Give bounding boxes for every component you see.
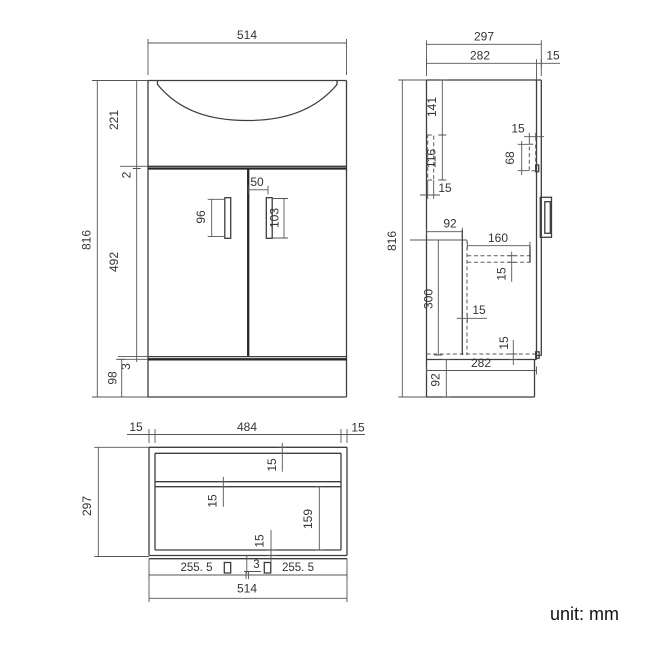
technical-drawing: 514 816 221 2 492 3 98 96 103 bbox=[0, 0, 650, 650]
plan-inner-outline bbox=[155, 453, 341, 550]
dim-label-plate-length: 68 bbox=[503, 151, 517, 165]
dim-label-front-height: 816 bbox=[80, 230, 94, 250]
hinge-mark-top bbox=[536, 165, 539, 172]
dim-recess: 92 bbox=[427, 217, 463, 236]
dim-label-plan-width: 514 bbox=[237, 582, 257, 596]
plan-outer-outline bbox=[149, 447, 347, 555]
dim-bracket-position: 141 116 bbox=[425, 80, 447, 180]
dim-plate-width: 15 bbox=[511, 122, 544, 145]
dim-label-bracket-length: 116 bbox=[425, 149, 439, 168]
dim-label-inner-width: 484 bbox=[237, 420, 257, 434]
dim-label-bracket-offset: 141 bbox=[425, 97, 439, 117]
basin-curve bbox=[158, 81, 338, 121]
dim-opening-depth: 159 bbox=[301, 487, 323, 550]
handle-plate-hidden bbox=[529, 144, 535, 170]
dim-label-plan-depth: 297 bbox=[80, 496, 94, 516]
dim-plan-depth: 297 bbox=[80, 447, 149, 556]
dim-label-carcass-depth: 282 bbox=[470, 49, 490, 63]
dim-label-front-width: 514 bbox=[237, 28, 257, 42]
dim-front-width: 514 bbox=[148, 28, 347, 75]
dim-label-bottom-depth: 282 bbox=[471, 356, 491, 370]
dim-label-left-door: 255. 5 bbox=[181, 562, 213, 574]
dim-bracket-width: 15 bbox=[420, 180, 452, 199]
dim-label-rail-thickness: 15 bbox=[206, 494, 220, 508]
dim-label-bottom-thickness: 15 bbox=[497, 336, 511, 350]
dim-plate-length: 68 bbox=[503, 141, 529, 175]
dim-label-front-panel: 15 bbox=[253, 534, 267, 548]
dim-right-handle: 103 bbox=[268, 199, 289, 239]
dim-divider-thickness: 15 bbox=[457, 303, 487, 322]
dim-label-door-height: 492 bbox=[107, 252, 121, 272]
dim-label-bottom-gap: 3 bbox=[119, 363, 133, 370]
dim-label-shelf-thickness: 15 bbox=[495, 267, 509, 281]
dim-label-side-depth: 297 bbox=[474, 30, 494, 44]
dim-side-carcass-door: 282 15 bbox=[427, 49, 561, 81]
dim-label-left-panel: 15 bbox=[129, 420, 143, 434]
left-door-handle bbox=[225, 198, 231, 239]
dim-side-height: 816 bbox=[385, 80, 427, 397]
dim-label-shelf-depth: 160 bbox=[488, 231, 508, 245]
dim-label-side-plinth: 92 bbox=[429, 373, 443, 387]
dim-label-side-height: 816 bbox=[385, 231, 399, 251]
dim-opening-height: 300 bbox=[410, 240, 467, 355]
side-handle-profile bbox=[540, 197, 551, 237]
dim-label-top-gap: 2 bbox=[120, 171, 134, 178]
dim-handle-offset: 50 bbox=[248, 175, 268, 195]
dim-label-plinth-height: 98 bbox=[106, 371, 120, 385]
front-view: 514 816 221 2 492 3 98 96 103 bbox=[80, 28, 347, 397]
shelf-hidden bbox=[467, 256, 530, 263]
dim-label-divider-thickness: 15 bbox=[472, 303, 486, 317]
dim-label-plate-width: 15 bbox=[511, 122, 525, 136]
dim-label-back-panel: 15 bbox=[265, 458, 279, 472]
dim-shelf-depth: 160 bbox=[467, 231, 530, 250]
side-view: 297 282 15 816 141 116 15 15 bbox=[385, 30, 560, 398]
dim-left-handle: 96 bbox=[194, 199, 225, 236]
dim-label-bracket-width: 15 bbox=[438, 181, 452, 195]
dim-plan-top: 15 484 15 bbox=[127, 420, 365, 443]
plan-right-handle bbox=[264, 563, 270, 574]
dim-bottom-thickness: 15 bbox=[497, 336, 517, 365]
dim-label-recess: 92 bbox=[443, 217, 457, 231]
dim-bottom-depth: 282 bbox=[427, 356, 537, 375]
dim-label-basin-height: 221 bbox=[107, 110, 121, 130]
dim-doors: 255. 5 3 255. 5 bbox=[149, 559, 347, 579]
dim-label-door-thickness: 15 bbox=[546, 49, 560, 63]
dim-label-right-panel: 15 bbox=[351, 421, 365, 435]
dim-front-chain: 221 2 492 3 bbox=[107, 81, 148, 370]
dim-label-opening-depth: 159 bbox=[301, 509, 315, 529]
dim-label-opening-height: 300 bbox=[422, 289, 436, 309]
plan-left-handle bbox=[224, 563, 230, 574]
unit-label: unit: mm bbox=[550, 604, 619, 624]
dim-label-left-handle: 96 bbox=[194, 210, 208, 224]
dim-label-right-door: 255. 5 bbox=[282, 562, 314, 574]
dim-side-plinth: 92 bbox=[429, 360, 451, 398]
dim-label-door-gap: 3 bbox=[253, 559, 259, 571]
plan-rail bbox=[155, 482, 341, 487]
dim-label-handle-offset: 50 bbox=[250, 175, 264, 189]
dim-plan-width: 514 bbox=[149, 559, 347, 603]
dim-label-right-handle: 103 bbox=[268, 208, 282, 228]
plan-view: 15 484 15 297 15 15 159 15 bbox=[80, 420, 365, 602]
